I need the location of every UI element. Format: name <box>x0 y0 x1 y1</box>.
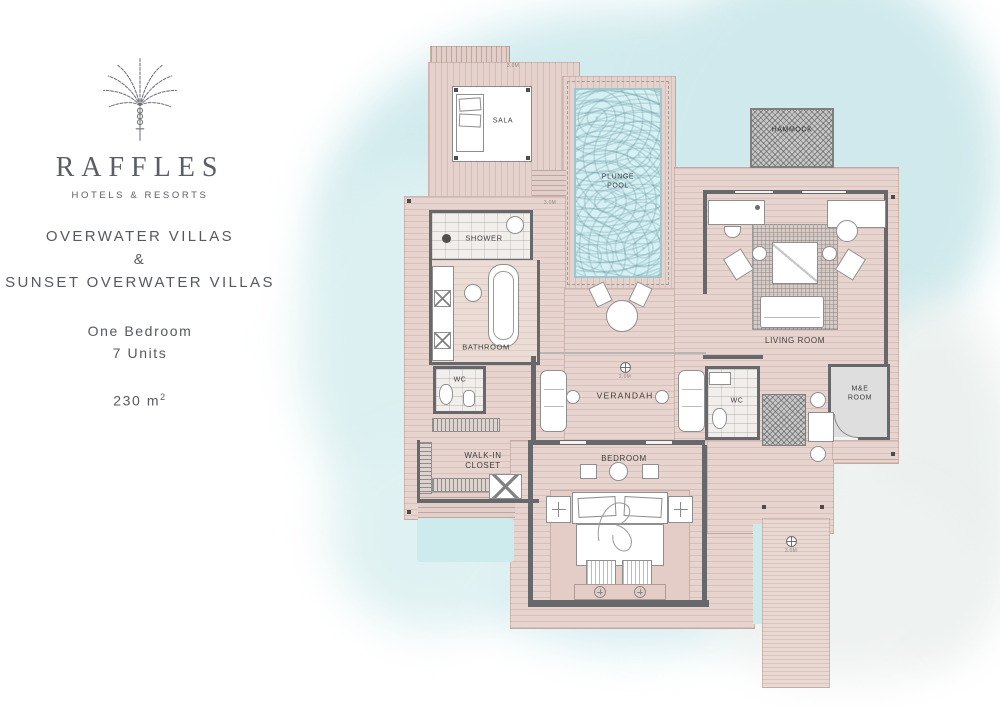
title-line-2: SUNSET OVERWATER VILLAS <box>0 271 280 294</box>
brand-tagline: HOTELS & RESORTS <box>0 190 280 201</box>
guest-basin <box>709 372 731 385</box>
shower-label: SHOWER <box>465 233 502 242</box>
writing-desk <box>708 200 765 225</box>
wall <box>417 440 420 502</box>
brochure-page: SALA PLUNGE POOL HAMMOCK SHOWER BATHROOM… <box>0 0 1000 706</box>
deck-dimension-text: 3.0M <box>544 200 556 206</box>
area-value: 230 m <box>113 393 160 409</box>
deck-stool <box>810 446 826 462</box>
deck-bolt <box>407 199 411 203</box>
vanity-sink <box>434 290 451 307</box>
wc-master-label: WC <box>454 377 467 386</box>
bedroom-console <box>642 464 659 479</box>
drawer-handle <box>634 586 646 598</box>
villa-area: 230 m2 <box>0 392 280 409</box>
platform-corner-dot <box>526 156 530 160</box>
verandah-side-table <box>655 390 669 404</box>
bathroom-label: BATHROOM <box>462 342 510 351</box>
wc-guest-label: WC <box>731 398 744 407</box>
raffles-logo: RAFFLES HOTELS & RESORTS <box>0 52 280 201</box>
unit-count: 7 Units <box>0 342 280 364</box>
me-side-deck <box>832 440 899 460</box>
water-gap-jetty <box>753 524 762 624</box>
villa-title: OVERWATER VILLAS & SUNSET OVERWATER VILL… <box>0 225 280 294</box>
verandah-edge-line <box>540 352 706 354</box>
villa-subtitle: One Bedroom 7 Units <box>0 320 280 364</box>
wall <box>703 355 763 359</box>
wall <box>417 499 539 503</box>
headboard-monogram-sketch <box>585 495 655 555</box>
closet-rail <box>432 418 500 432</box>
door-gap <box>646 441 672 444</box>
raffles-palm-logo-icon <box>92 52 188 148</box>
wall <box>531 356 536 444</box>
deck-bolt <box>820 505 824 509</box>
platform-corner-dot <box>526 88 530 92</box>
verandah-label: VERANDAH <box>597 391 654 402</box>
shower-control-knob <box>442 234 451 243</box>
sala-pillow <box>459 97 482 112</box>
shower-head <box>506 216 524 234</box>
brand-name: RAFFLES <box>0 152 280 184</box>
wall-living-west <box>703 190 707 294</box>
plunge-pool-label: PLUNGE POOL <box>602 173 634 191</box>
wall-living-north <box>705 190 888 194</box>
level-marker-icon <box>620 362 631 373</box>
wall-bedroom-south <box>528 600 709 607</box>
deck-bolt <box>407 510 411 514</box>
dining-table <box>606 300 638 332</box>
area-superscript: 2 <box>160 392 167 402</box>
verandah-side-table <box>566 390 580 404</box>
sofa <box>760 296 824 328</box>
deck-bolt <box>891 195 895 199</box>
window-gap <box>735 191 773 193</box>
bed-foot-stool <box>622 560 652 586</box>
info-panel: RAFFLES HOTELS & RESORTS OVERWATER VILLA… <box>0 0 280 706</box>
deck-dimension-text: 3.0M <box>507 63 519 69</box>
me-room-label: M&E ROOM <box>848 385 872 403</box>
nightstand <box>546 496 571 523</box>
pouf <box>752 246 767 261</box>
wall-bedroom-east <box>702 445 707 603</box>
bedroom-count: One Bedroom <box>0 320 280 342</box>
bath-stool <box>464 284 482 302</box>
living-room-label: LIVING ROOM <box>765 336 825 346</box>
wall <box>528 440 533 605</box>
tv-console <box>827 200 886 228</box>
bathtub-basin <box>493 271 514 340</box>
sala-pillow <box>459 113 482 127</box>
platform-corner-dot <box>454 88 458 92</box>
hammock-net <box>750 108 834 168</box>
bed-foot-drawer <box>574 584 666 600</box>
side-round-table <box>836 220 858 242</box>
bed-foot-stool <box>586 560 616 586</box>
deck-bolt <box>891 452 895 456</box>
level-marker-text: 3.0M <box>785 548 797 554</box>
hammock-label: HAMMOCK <box>772 127 813 136</box>
closet-rail <box>419 442 432 494</box>
deck-bolt <box>762 505 766 509</box>
water-gap-southwest <box>417 518 514 562</box>
pool-side-steps <box>532 170 566 198</box>
wc-bidet <box>463 390 475 407</box>
bedroom-round-mirror <box>609 462 628 481</box>
deck-bench <box>808 412 834 442</box>
coffee-table <box>772 242 818 284</box>
deck-stool <box>810 392 826 408</box>
outdoor-shower-mat <box>762 394 806 446</box>
pouf <box>822 246 837 261</box>
level-marker-icon <box>786 536 797 547</box>
guest-toilet <box>712 408 727 429</box>
title-line-1: OVERWATER VILLAS <box>0 225 280 248</box>
bedroom-label: BEDROOM <box>601 454 647 464</box>
wc-toilet <box>439 384 453 405</box>
nightstand <box>668 496 693 523</box>
wall-verandah-bedroom <box>533 440 705 445</box>
title-ampersand: & <box>0 248 280 271</box>
sala-label: SALA <box>493 118 513 127</box>
desk-lamp <box>755 205 760 210</box>
window-gap <box>802 191 846 193</box>
drawer-handle <box>594 586 606 598</box>
verandah-lounger <box>678 370 705 432</box>
bedroom-console <box>580 464 597 479</box>
platform-corner-dot <box>454 156 458 160</box>
level-marker-text: 2.0M <box>619 374 631 380</box>
vanity-sink <box>434 332 451 349</box>
verandah-lounger <box>540 370 567 432</box>
door-gap <box>560 441 586 444</box>
walk-in-closet-label: WALK-IN CLOSET <box>464 451 501 471</box>
luggage-bench <box>489 474 522 499</box>
